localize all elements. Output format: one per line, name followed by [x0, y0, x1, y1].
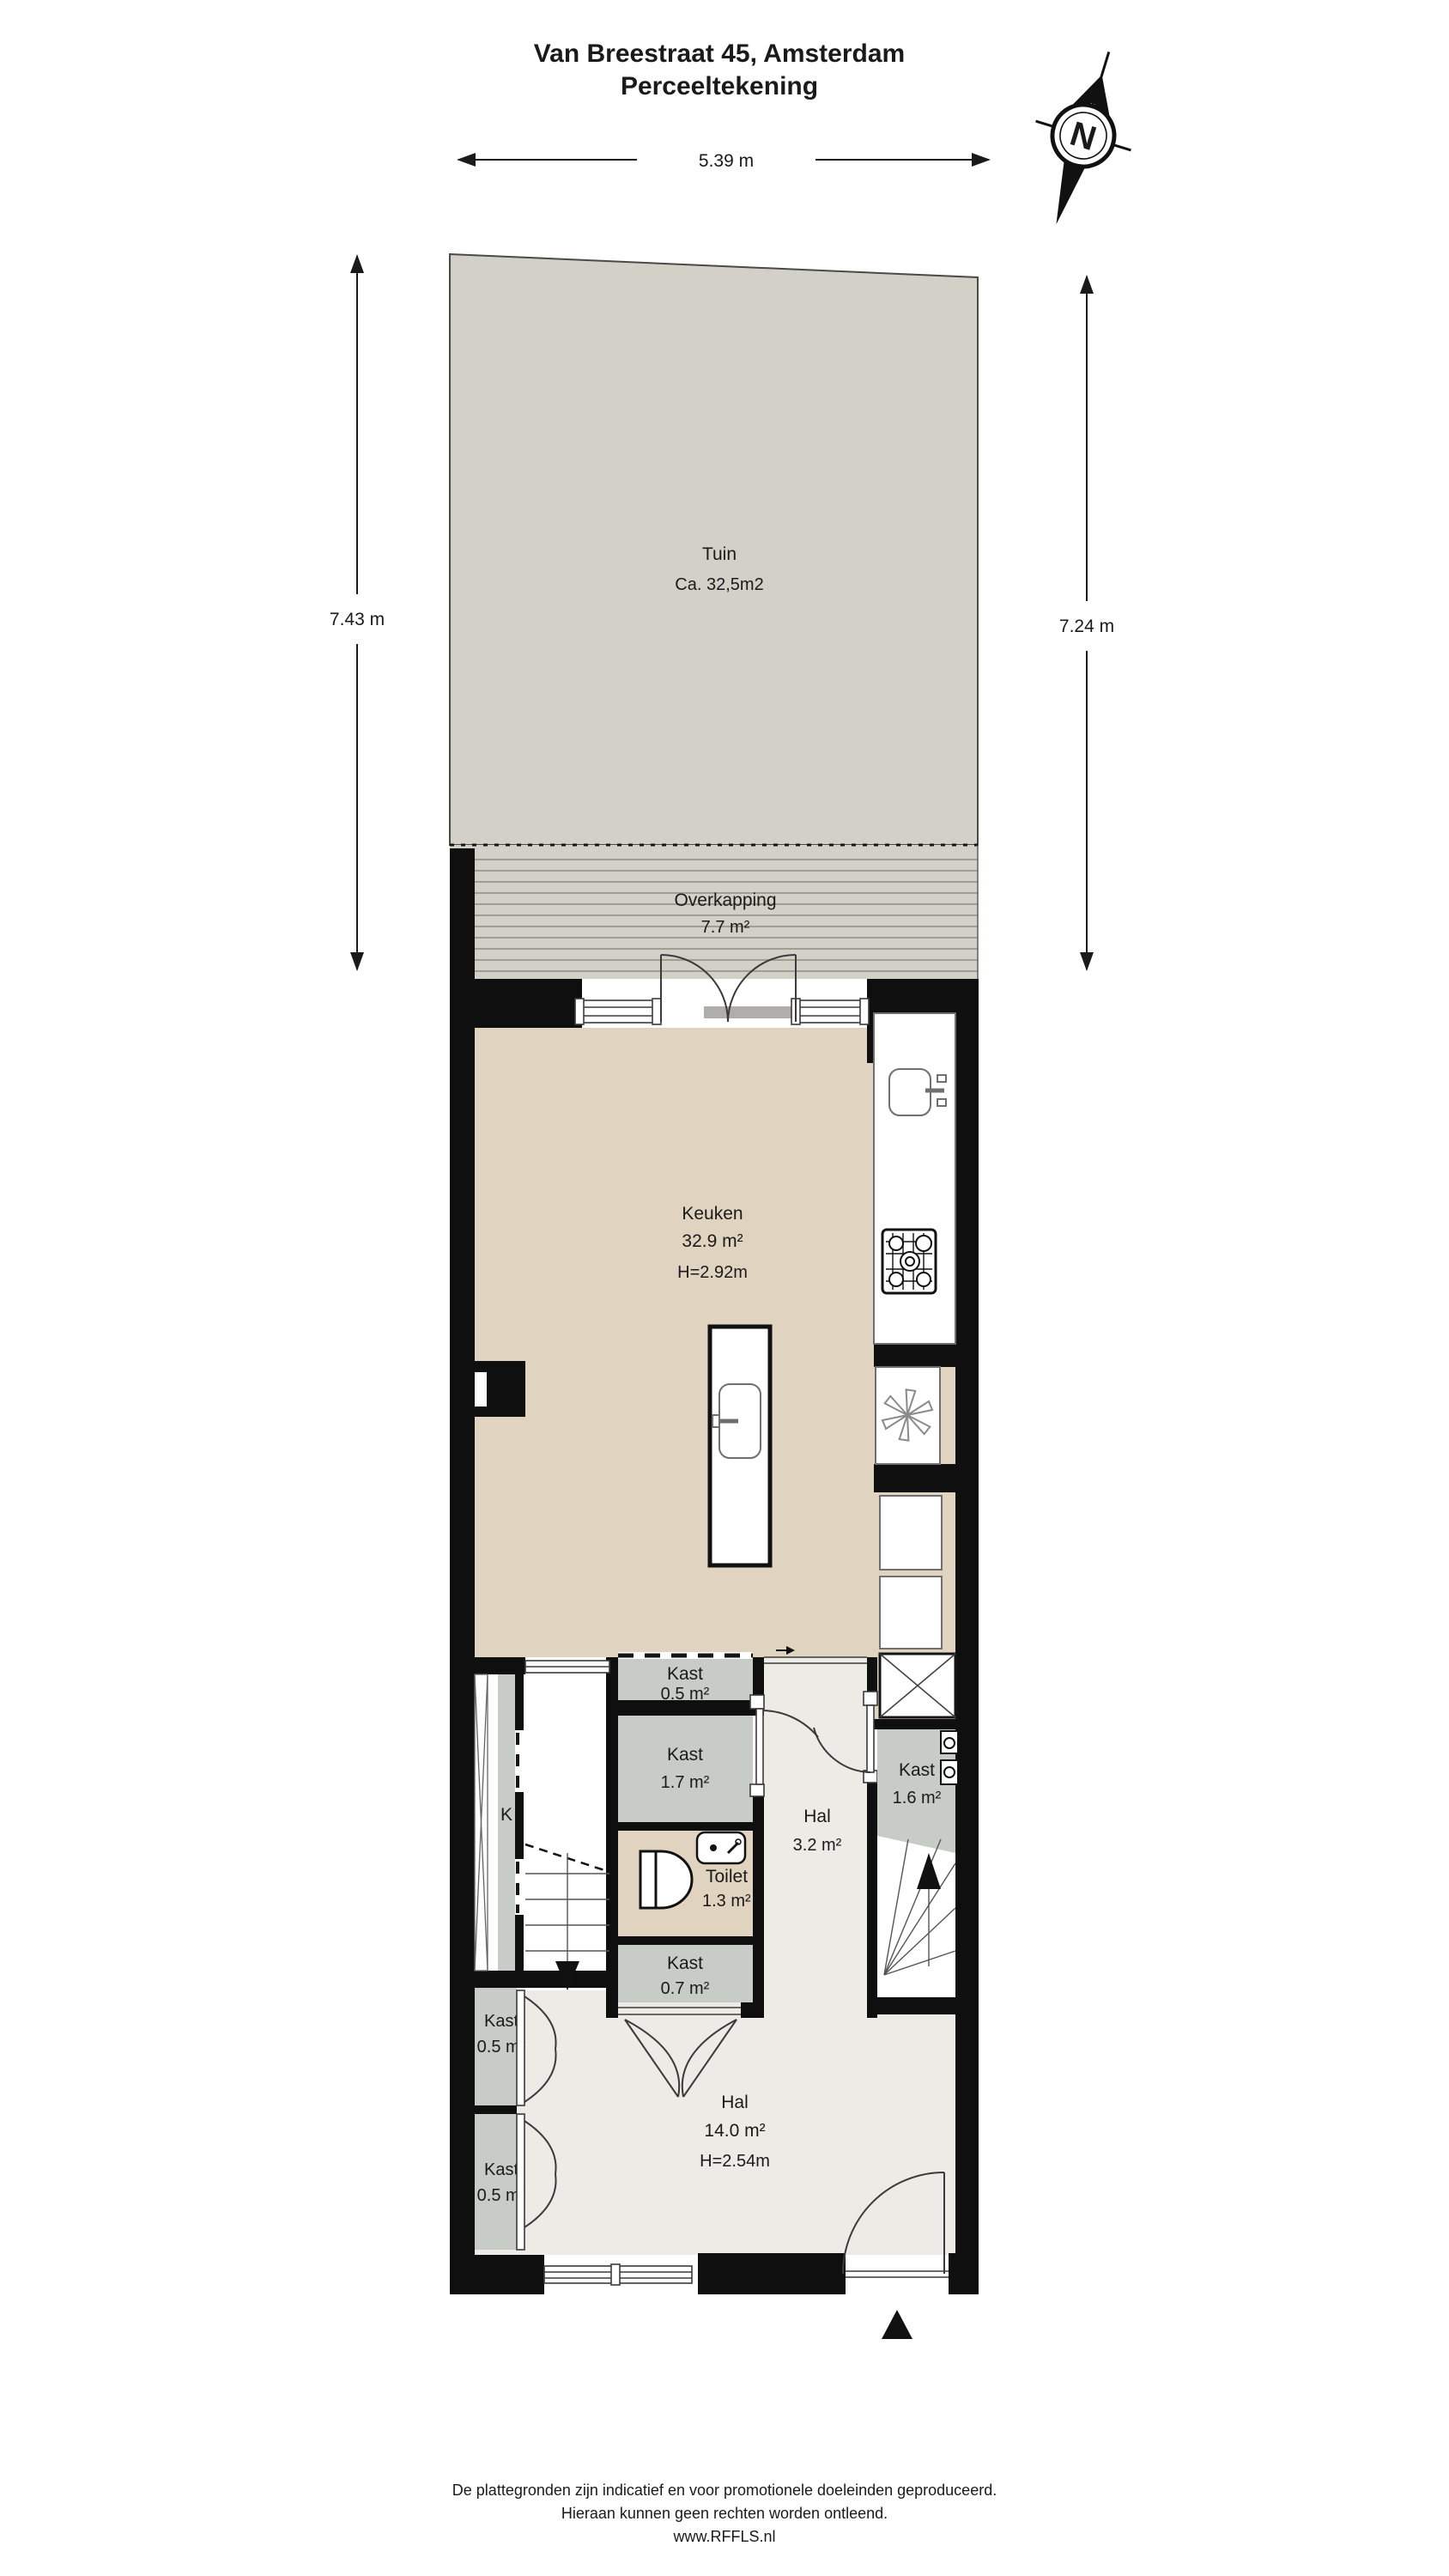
dimension-right: 7.24 m: [1059, 275, 1114, 971]
room-toilet-area: 1.3 m²: [702, 1892, 751, 1911]
room-overkapping: [450, 845, 978, 979]
room-kast-midden-area: 1.7 m²: [661, 1773, 710, 1792]
dimension-left: 7.43 m: [330, 254, 385, 971]
room-kast-links-1-label: Kast: [484, 2012, 518, 2031]
window-left: [575, 999, 661, 1024]
room-overkapping-area: 7.7 m²: [701, 918, 750, 937]
kitchen-counter: [874, 1013, 955, 1344]
facade-window: [544, 2264, 692, 2285]
room-kast-rechts-label: Kast: [899, 1760, 935, 1780]
entrance-arrow: [882, 2310, 912, 2339]
room-kast-k-label: K: [500, 1805, 512, 1825]
room-hal-klein-area: 3.2 m²: [793, 1836, 842, 1855]
room-toilet-label: Toilet: [706, 1867, 748, 1886]
dimension-left-label: 7.43 m: [330, 610, 385, 629]
room-kast-onder-area: 0.7 m²: [661, 1979, 710, 1998]
footer-website: www.RFFLS.nl: [672, 2528, 775, 2545]
room-keuken-height: H=2.92m: [677, 1263, 748, 1282]
dimension-right-label: 7.24 m: [1059, 617, 1114, 636]
room-kast-midden: [618, 1716, 753, 1822]
room-kast-rechts-area: 1.6 m²: [893, 1789, 942, 1807]
room-kast-links-2-label: Kast: [484, 2160, 518, 2179]
room-keuken-area: 32.9 m²: [682, 1231, 743, 1251]
room-hal-groot-area: 14.0 m²: [704, 2121, 765, 2141]
washbasin-icon: [697, 1832, 745, 1863]
window-right: [791, 999, 869, 1024]
stove-icon: [882, 1230, 936, 1293]
floorplan-canvas: Van Breestraat 45, Amsterdam Perceelteke…: [0, 0, 1449, 2576]
footer-disclaimer-2: Hieraan kunnen geen rechten worden ontle…: [561, 2505, 888, 2522]
island-sink-icon: [712, 1384, 761, 1458]
dimension-top: 5.39 m: [457, 151, 991, 171]
room-tuin-label: Tuin: [702, 544, 737, 564]
room-overkapping-label: Overkapping: [674, 890, 776, 910]
footer-disclaimer-1: De plattegronden zijn indicatief en voor…: [452, 2482, 997, 2499]
room-kast-onder-label: Kast: [667, 1953, 703, 1973]
door-sill: [704, 1006, 797, 1018]
dimension-top-label: 5.39 m: [699, 151, 754, 171]
room-keuken-label: Keuken: [682, 1204, 743, 1224]
page-subtitle: Perceeltekening: [621, 72, 818, 100]
kitchen-island: [710, 1327, 770, 1565]
page-title: Van Breestraat 45, Amsterdam: [534, 39, 905, 68]
tall-cabinet: [475, 1674, 488, 1971]
ventilation-unit: [876, 1367, 940, 1464]
compass-tick-east: [1113, 145, 1131, 150]
room-kast-midden-label: Kast: [667, 1745, 703, 1765]
room-hal-groot-label: Hal: [721, 2093, 749, 2112]
floorplan-page: Van Breestraat 45, Amsterdam Perceelteke…: [0, 0, 1449, 2576]
room-kast-boven-area: 0.5 m²: [661, 1685, 710, 1704]
interior-window-stairwell: [525, 1661, 609, 1673]
compass-tick-west: [1036, 121, 1053, 126]
compass-icon: N: [1009, 37, 1156, 239]
room-kast-boven-label: Kast: [667, 1664, 703, 1684]
room-hal-klein-label: Hal: [803, 1807, 831, 1826]
room-hal-groot-height: H=2.54m: [700, 2152, 770, 2171]
room-tuin-area: Ca. 32,5m2: [675, 575, 763, 594]
toilet-icon: [640, 1851, 692, 1908]
room-kast-links-2: [475, 2114, 517, 2250]
